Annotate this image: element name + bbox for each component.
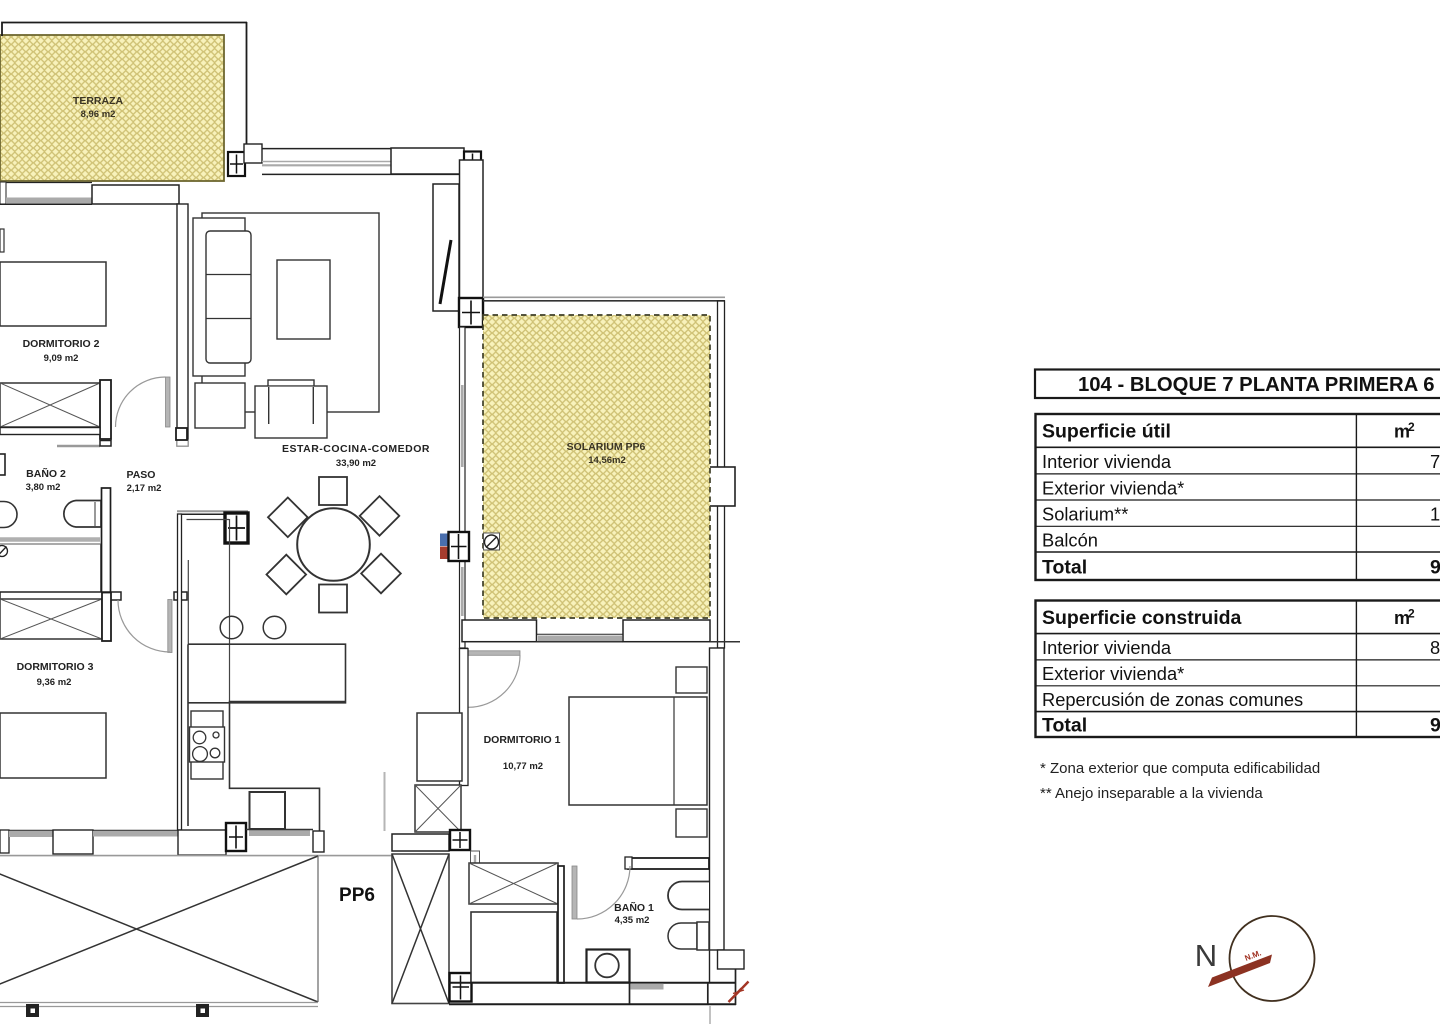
svg-text:Interior vivienda: Interior vivienda (1042, 637, 1172, 658)
svg-text:BAÑO 2: BAÑO 2 (26, 467, 66, 480)
svg-text:DORMITORIO 1: DORMITORIO 1 (484, 734, 561, 746)
svg-text:33,90 m2: 33,90 m2 (336, 458, 376, 469)
svg-text:3,80 m2: 3,80 m2 (26, 482, 61, 493)
svg-text:* Zona exterior que computa ed: * Zona exterior que computa edificabilid… (1040, 760, 1320, 777)
svg-text:8: 8 (1430, 637, 1440, 658)
svg-text:** Anejo inseparable a la vivi: ** Anejo inseparable a la vivienda (1040, 785, 1263, 802)
svg-text:Exterior vivienda*: Exterior vivienda* (1042, 478, 1184, 499)
svg-text:DORMITORIO 3: DORMITORIO 3 (17, 661, 94, 673)
svg-text:Total: Total (1042, 557, 1087, 579)
svg-text:Superficie útil: Superficie útil (1042, 421, 1171, 443)
svg-text:14,56m2: 14,56m2 (588, 455, 626, 466)
svg-text:PASO: PASO (127, 469, 156, 481)
svg-text:7: 7 (1430, 451, 1440, 472)
svg-text:N: N (1195, 938, 1217, 973)
svg-text:4,35 m2: 4,35 m2 (615, 915, 650, 926)
svg-text:DORMITORIO 2: DORMITORIO 2 (23, 338, 100, 350)
svg-text:Interior vivienda: Interior vivienda (1042, 451, 1172, 472)
svg-text:Total: Total (1042, 715, 1087, 737)
svg-text:104 - BLOQUE 7 PLANTA PRIMERA: 104 - BLOQUE 7 PLANTA PRIMERA 6 (1078, 374, 1434, 396)
svg-text:Repercusión de zonas comunes: Repercusión de zonas comunes (1042, 689, 1303, 710)
svg-text:9,36 m2: 9,36 m2 (37, 677, 72, 688)
svg-text:BAÑO 1: BAÑO 1 (614, 901, 654, 914)
svg-text:2: 2 (1408, 607, 1415, 621)
svg-text:9: 9 (1430, 715, 1440, 737)
svg-text:ESTAR-COCINA-COMEDOR: ESTAR-COCINA-COMEDOR (282, 443, 430, 455)
svg-text:2: 2 (1408, 420, 1415, 434)
svg-text:Balcón: Balcón (1042, 530, 1098, 551)
svg-text:Superficie construida: Superficie construida (1042, 607, 1242, 629)
svg-text:SOLARIUM PP6: SOLARIUM PP6 (567, 441, 646, 453)
svg-text:8,96 m2: 8,96 m2 (81, 109, 116, 120)
svg-text:9,09 m2: 9,09 m2 (44, 353, 79, 364)
svg-text:TERRAZA: TERRAZA (73, 95, 124, 107)
svg-text:Solarium**: Solarium** (1042, 504, 1128, 525)
svg-text:Exterior vivienda*: Exterior vivienda* (1042, 663, 1184, 684)
svg-text:2,17 m2: 2,17 m2 (127, 483, 162, 494)
svg-text:9: 9 (1430, 557, 1440, 579)
svg-text:PP6: PP6 (339, 885, 375, 906)
svg-text:10,77 m2: 10,77 m2 (503, 761, 543, 772)
svg-text:1: 1 (1430, 504, 1440, 525)
